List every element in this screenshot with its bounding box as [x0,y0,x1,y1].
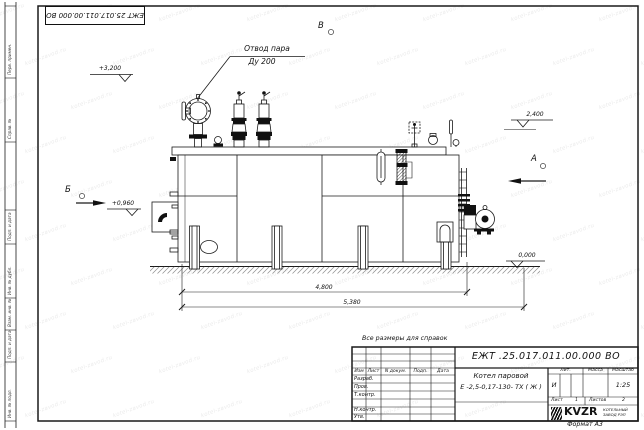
side-strip-label: Взам. инв. № [7,299,12,327]
dim-4800: 4,800 [315,285,332,291]
callout-steam-outlet-line2: Ду 200 [249,58,276,66]
scale-value: 1:25 [616,382,631,389]
access-door [152,157,178,252]
col-doc: N докум. [385,370,406,375]
side-strip-label: Подп. и дата [7,330,12,359]
side-strip-label: Подп. и дата [7,212,12,241]
reference-note: Все размеры для справок [362,336,447,342]
col-podp: Подп. [414,370,428,375]
elevation-2400: 2,400 [526,112,543,118]
callout-steam-outlet-line1: Отвод пара [244,45,290,53]
boiler-drawing [0,0,644,430]
side-strip-label: Инв. № дубл. [7,266,12,295]
view-label-b: Б [65,186,71,195]
hdr-mass: Масса [588,369,603,374]
company-logo-mark [551,407,562,420]
role-prov: Пров. [354,385,369,390]
dim-5380: 5,380 [343,300,360,306]
side-strip-label: Перв. примен. [7,44,12,75]
burner [464,205,495,235]
company-name-line1: КОТЕЛЬНЫЙ [603,408,628,412]
stop-valve [182,95,211,148]
titleblock-doc-number: ЕЖТ .25.017.011.00.000 ВО [472,352,620,362]
view-label-a: А [531,155,537,164]
side-strip-label: Справ. № [7,119,12,139]
role-nkontr: Н.контр. [354,408,376,413]
ground-hatch [150,267,540,274]
company-name-line2: ЗАВОД РЭП [603,413,626,417]
company-logo-text: KVZR [564,405,597,418]
titleblock-product-line2: Е -2,5-0,17-130- ТХ ( Ж ) [460,384,542,391]
platform-fitting [214,137,224,147]
col-izm: Изм [354,370,363,375]
role-razrab: Разраб. [354,377,374,382]
lit-value: И [552,382,557,389]
sheet-value: 1 [575,399,578,404]
col-list: Лист [368,370,380,375]
sheets-label: Листов [589,399,606,404]
role-tkontr: Т.контр. [354,393,376,398]
hdr-lit: Лит. [560,369,571,374]
platform-equipment-right [409,120,459,147]
titleblock-product-line1: Котел паровой [474,373,529,380]
role-utv: Утв. [354,415,365,420]
top-doc-number: ЕЖТ 25.017.011.00.000 ВО [46,12,144,20]
side-strip-label: Инв. № подл. [7,389,12,418]
boiler-body [172,147,459,262]
elevation-3200: +3,200 [99,66,121,72]
sheets-value: 2 [622,399,625,404]
view-label-v: В [318,22,324,31]
safety-valves [231,91,272,147]
elevation-0000: 0,000 [518,253,535,259]
manhole-ellipse [201,241,218,254]
elevation-0960: +0,960 [112,201,134,207]
sheet-label: Лист [551,399,563,404]
drawing-sheet: kotel-zavod.rukotel-zavod.rukotel-zavod.… [0,0,644,430]
top-doc-number-box: ЕЖТ 25.017.011.00.000 ВО [45,6,145,25]
format-note: Формат А3 [567,422,603,428]
hdr-scale: Масштаб [612,369,634,374]
col-data: Дата [437,370,449,375]
